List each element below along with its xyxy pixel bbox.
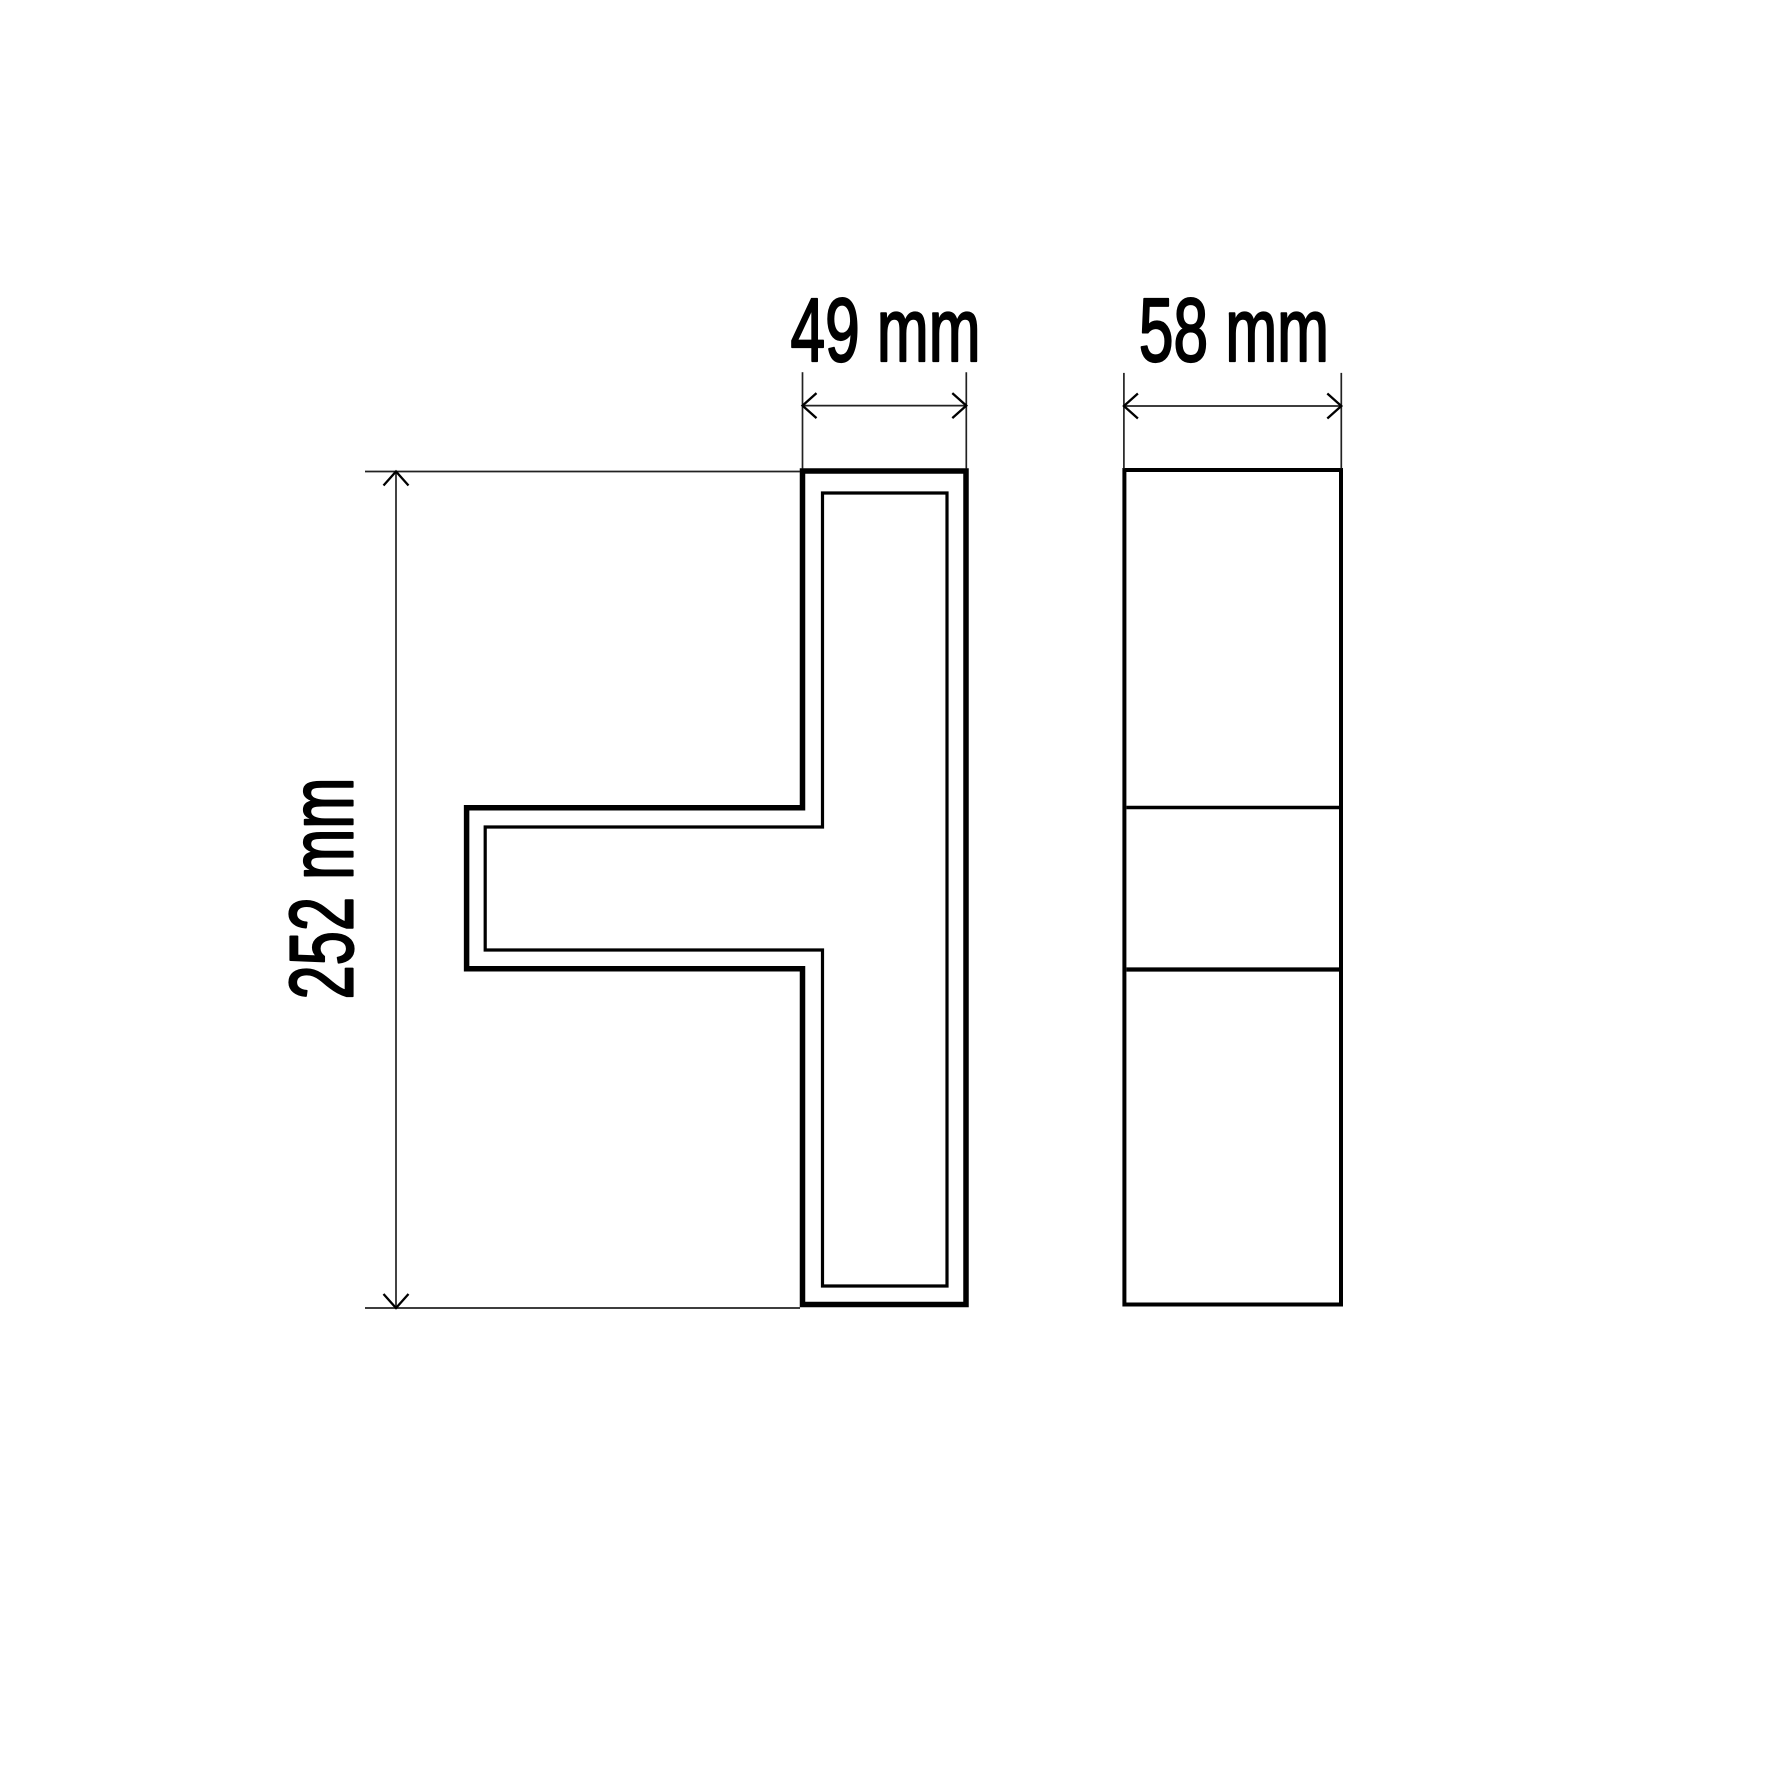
svg-text:49 mm: 49 mm xyxy=(791,281,981,381)
svg-text:252 mm: 252 mm xyxy=(273,778,373,1000)
svg-text:58 mm: 58 mm xyxy=(1139,281,1329,381)
